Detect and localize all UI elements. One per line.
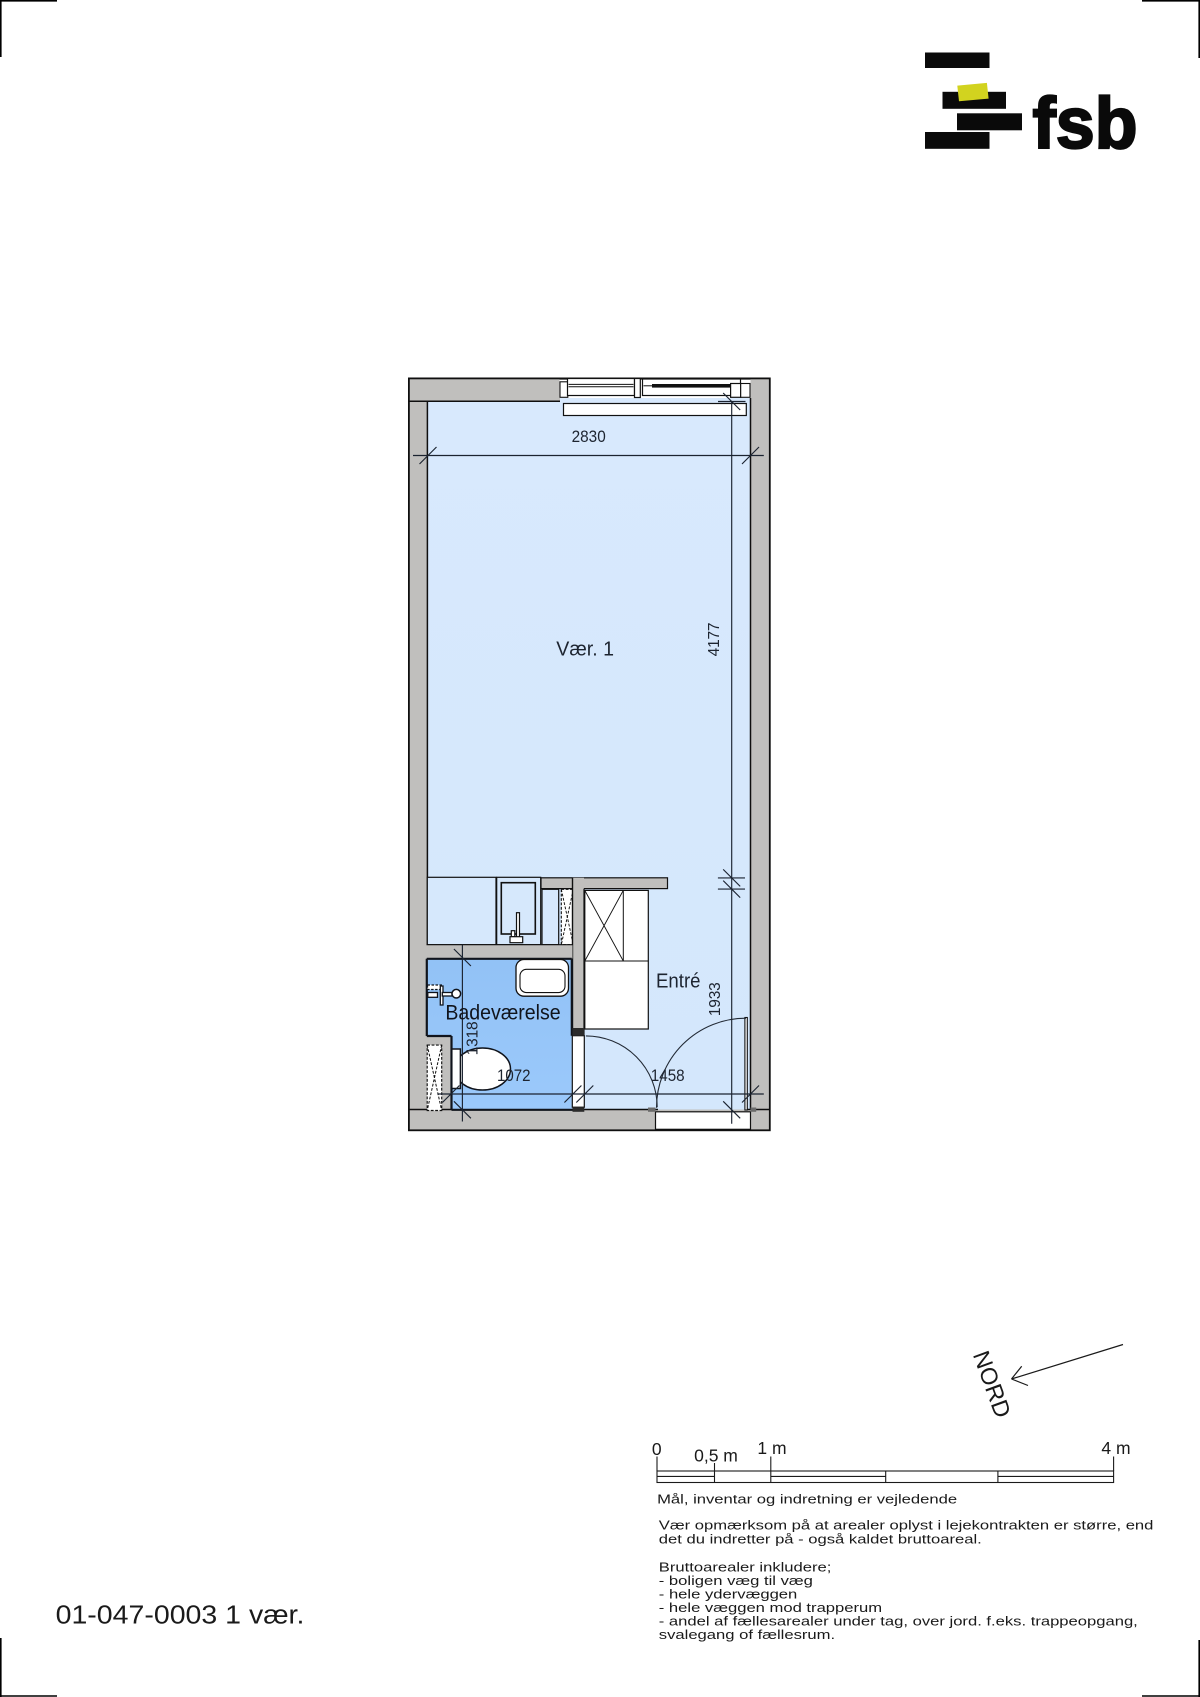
svg-text:1318: 1318 xyxy=(465,1022,482,1056)
svg-text:fsb: fsb xyxy=(1033,84,1138,164)
svg-text:Mål, inventar og indretning er: Mål, inventar og indretning er vejledend… xyxy=(657,1492,957,1507)
svg-text:1 m: 1 m xyxy=(757,1438,786,1458)
svg-text:Vær. 1: Vær. 1 xyxy=(556,638,614,661)
svg-text:0: 0 xyxy=(652,1439,662,1459)
svg-text:1933: 1933 xyxy=(707,982,724,1016)
svg-text:0,5 m: 0,5 m xyxy=(694,1445,738,1465)
svg-text:Entré: Entré xyxy=(656,971,701,993)
svg-text:1072: 1072 xyxy=(497,1067,531,1085)
svg-text:1458: 1458 xyxy=(651,1067,685,1085)
svg-text:4 m: 4 m xyxy=(1101,1438,1130,1458)
svg-text:01-047-0003 1 vær.: 01-047-0003 1 vær. xyxy=(56,1599,305,1629)
svg-text:svalegang of fællesrum.: svalegang of fællesrum. xyxy=(659,1627,835,1642)
svg-text:4177: 4177 xyxy=(706,623,723,657)
svg-text:Badeværelse: Badeværelse xyxy=(445,1002,560,1025)
svg-text:2830: 2830 xyxy=(572,428,606,446)
svg-text:det du indretter på - også kal: det du indretter på - også kaldet brutto… xyxy=(659,1531,982,1546)
svg-text:NORD: NORD xyxy=(968,1347,1016,1421)
